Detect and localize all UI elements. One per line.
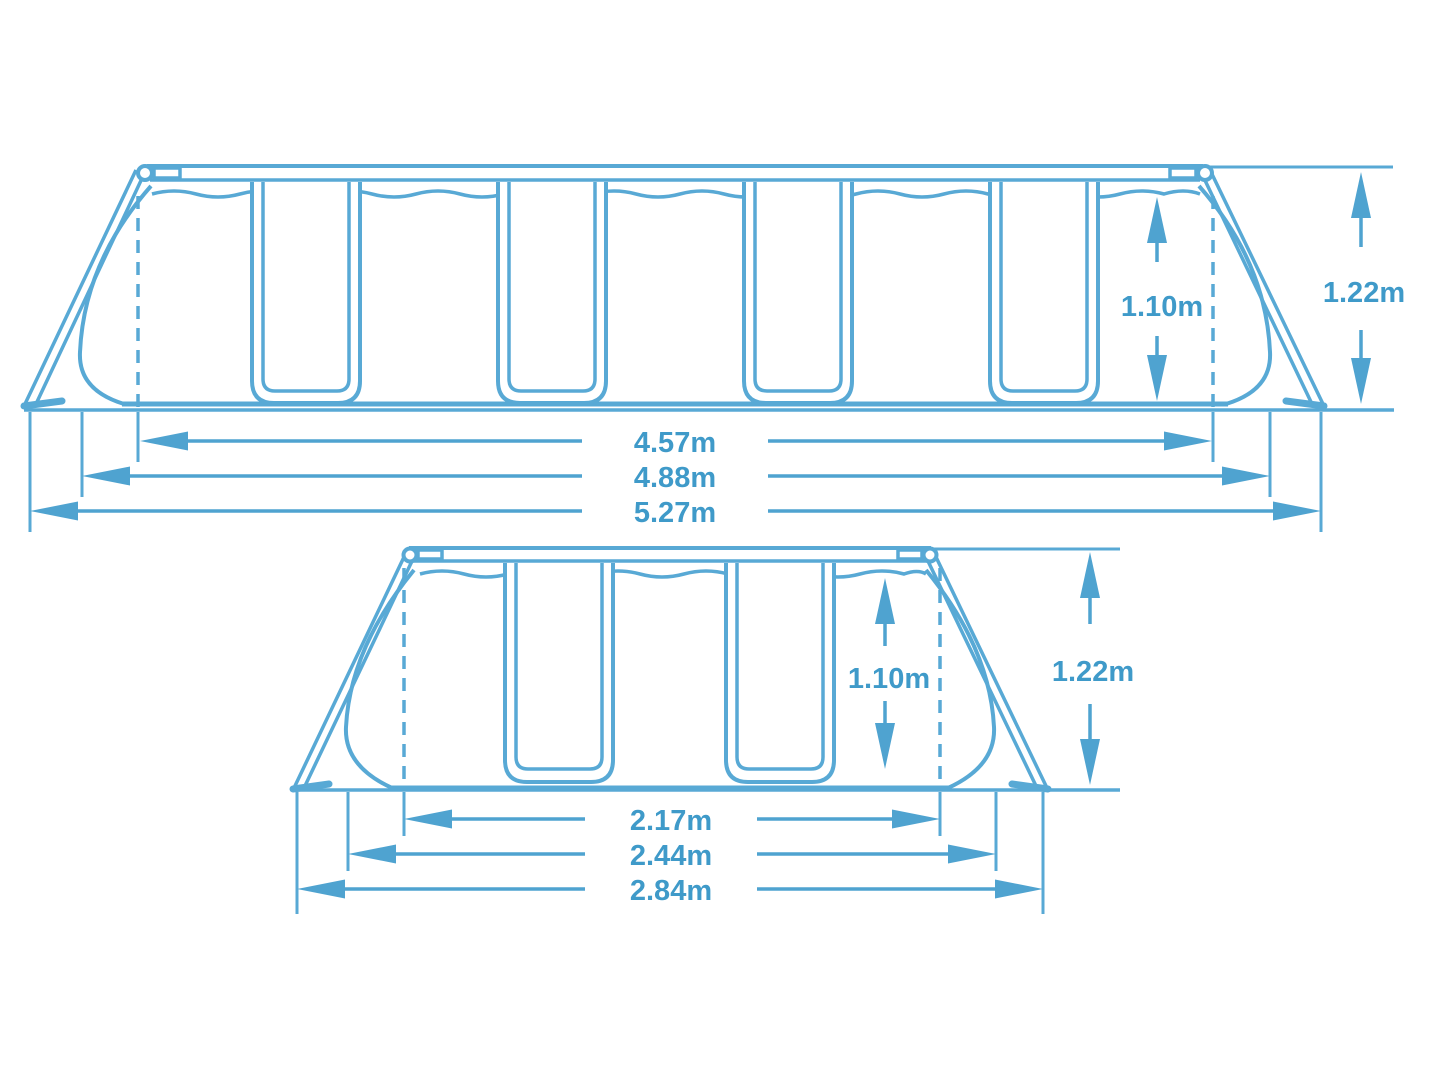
rail-sleeve-right [1170, 168, 1196, 178]
dimension-base-width: 2.44m [348, 840, 996, 872]
end-inner-width-label: 2.17m [630, 805, 712, 837]
frame-channel-inner [516, 563, 602, 769]
frame-channel-inner [737, 563, 823, 769]
side-frame-height-label: 1.22m [1323, 277, 1405, 309]
dimension-frame-height: 1.22m [1052, 552, 1134, 785]
dimension-outer-width: 5.27m [30, 497, 1321, 529]
frame-channels [505, 563, 834, 782]
frame-channel-inner [755, 182, 841, 391]
dimension-outer-width: 2.84m [297, 875, 1043, 907]
frame-channel-inner [1001, 182, 1087, 391]
water-line [420, 571, 926, 577]
pool-side-view: 4.57m 4.88m 5.27m 1.10m 1.22m [24, 166, 1405, 532]
end-base-width-label: 2.44m [630, 840, 712, 872]
leg-right [1201, 170, 1323, 404]
rail-knob-left [138, 166, 152, 180]
rail-sleeve-left [418, 550, 442, 559]
leg-foot-left [24, 401, 62, 406]
side-outer-width-label: 5.27m [634, 497, 716, 529]
rail-sleeve-right [898, 550, 922, 559]
leg-foot-right [1286, 401, 1324, 406]
dimension-inner-width: 2.17m [404, 805, 940, 837]
dimension-frame-height: 1.22m [1323, 172, 1405, 404]
dimension-inner-width: 4.57m [140, 427, 1212, 459]
pool-dimensions-diagram: 4.57m 4.88m 5.27m 1.10m 1.22m [0, 0, 1445, 1084]
pool-wall-left [80, 186, 151, 404]
diagram-canvas: 4.57m 4.88m 5.27m 1.10m 1.22m [0, 0, 1445, 1084]
frame-channels [252, 182, 1098, 403]
rail-knob-right [1198, 166, 1212, 180]
dimension-base-width: 4.88m [82, 462, 1270, 494]
frame-channel-inner [263, 182, 349, 391]
dimension-water-depth: 1.10m [1121, 197, 1203, 401]
end-water-depth-label: 1.10m [848, 663, 930, 695]
leg-left [25, 170, 145, 404]
frame-channel-inner [509, 182, 595, 391]
side-water-depth-label: 1.10m [1121, 291, 1203, 323]
leg-foot-left [293, 784, 329, 789]
end-outer-width-label: 2.84m [630, 875, 712, 907]
side-inner-width-label: 4.57m [634, 427, 716, 459]
rail-sleeve-left [154, 168, 180, 178]
dimension-water-depth: 1.10m [848, 578, 930, 769]
pool-end-view: 2.17m 2.44m 2.84m 1.10m 1.22m [292, 548, 1134, 914]
rail-knob-left [404, 549, 417, 562]
rail-knob-right [924, 549, 937, 562]
leg-foot-right [1012, 784, 1048, 789]
side-base-width-label: 4.88m [634, 462, 716, 494]
end-frame-height-label: 1.22m [1052, 656, 1134, 688]
